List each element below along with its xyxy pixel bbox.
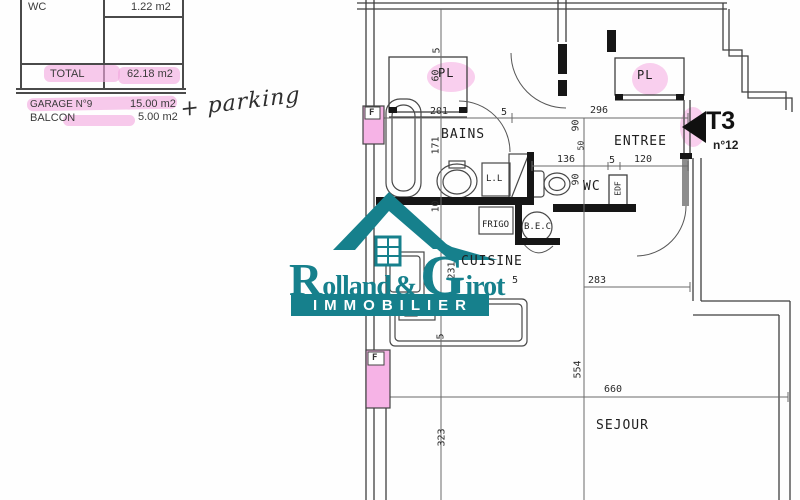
dim-sejour-left: 323: [437, 420, 448, 456]
table-row-balcon-label: BALCON: [30, 112, 75, 124]
room-label-wc: WC: [583, 179, 601, 194]
dim-bains-height: 171: [431, 128, 442, 164]
room-label-entree: ENTREE: [614, 134, 667, 149]
fixture-label-frigo: FRIGO: [482, 220, 509, 230]
table-row-total-value: 62.18 m2: [127, 68, 173, 80]
dim-sejour-height: 554: [573, 352, 584, 388]
bathtub: [386, 99, 421, 197]
unit-type-label: T3: [706, 107, 735, 136]
dim-pl-depth: 60: [431, 58, 442, 94]
fixture-label-lave-linge: L.L: [486, 174, 502, 184]
table-row-wc-label: WC: [28, 1, 46, 13]
room-label-bains: BAINS: [441, 127, 485, 142]
dim-entry-width: 120: [634, 154, 652, 165]
dim-sejour-width: 660: [604, 384, 622, 395]
dim-counter-wall: 5: [436, 319, 447, 355]
dim-bains-wall: 5: [501, 107, 507, 118]
dim-wc-wall: 5: [609, 155, 615, 166]
table-row-wc-value: 1.22 m2: [131, 1, 171, 13]
room-label-sejour: SEJOUR: [596, 418, 649, 433]
table-row-balcon-value: 5.00 m2: [138, 111, 178, 123]
window-label-f1: F: [369, 108, 374, 118]
dim-cuisine-wall: 5: [512, 275, 518, 286]
dim-hall-width: 283: [588, 275, 606, 286]
dim-entree-width: 296: [590, 105, 608, 116]
table-row-garage-label: GARAGE N°9: [30, 99, 92, 110]
table-row-total-label: TOTAL: [50, 68, 84, 80]
floor-plan-page: PL PL BAINS ENTREE WC CUISINE SEJOUR L.L…: [0, 0, 800, 500]
dim-bains-width: 201: [430, 106, 448, 117]
window-label-f2: F: [372, 353, 377, 363]
dim-wall-10: 10: [431, 189, 442, 225]
room-label-pl-right: PL: [637, 68, 653, 82]
dim-door-width: 50: [577, 128, 586, 164]
table-row-garage-value: 15.00 m2: [130, 98, 176, 110]
fixture-label-edf: EDF: [614, 171, 623, 207]
logo-banner-text: IMMOBILIER: [307, 297, 473, 314]
fixture-label-bec: B.E.C: [524, 222, 551, 232]
unit-number-label: n°12: [713, 138, 738, 152]
logo-banner: IMMOBILIER: [291, 294, 489, 316]
dim-wc-height: 90: [571, 162, 582, 198]
